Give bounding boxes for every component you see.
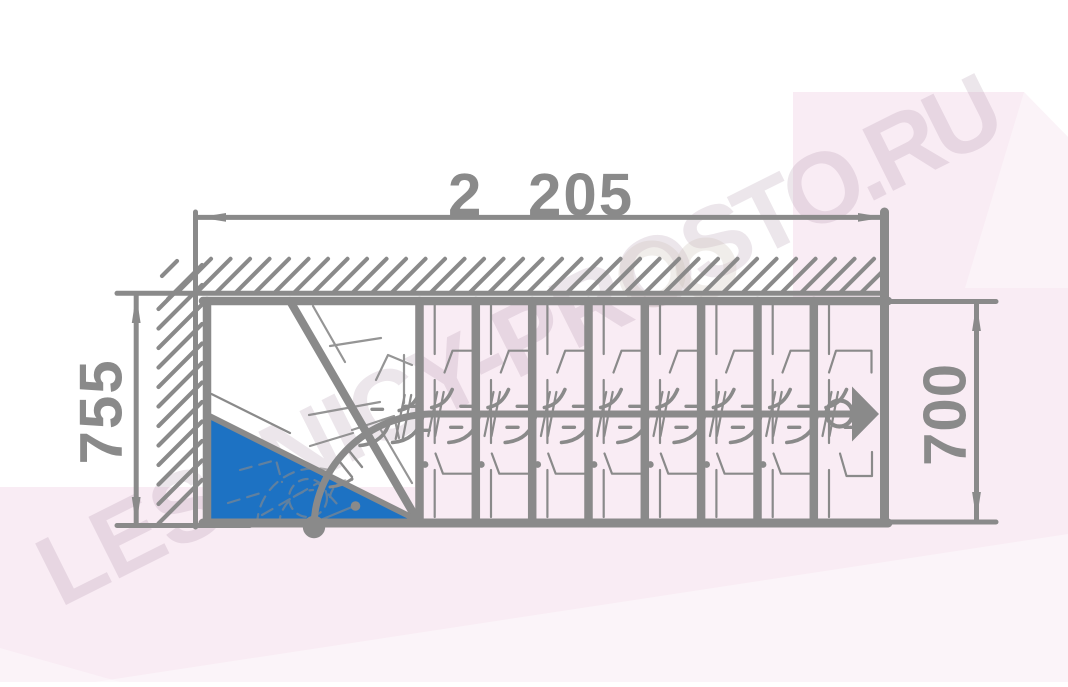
svg-text:700: 700: [912, 363, 979, 466]
svg-text:205: 205: [528, 162, 634, 229]
svg-text:755: 755: [68, 358, 135, 464]
svg-text:2: 2: [448, 162, 481, 229]
